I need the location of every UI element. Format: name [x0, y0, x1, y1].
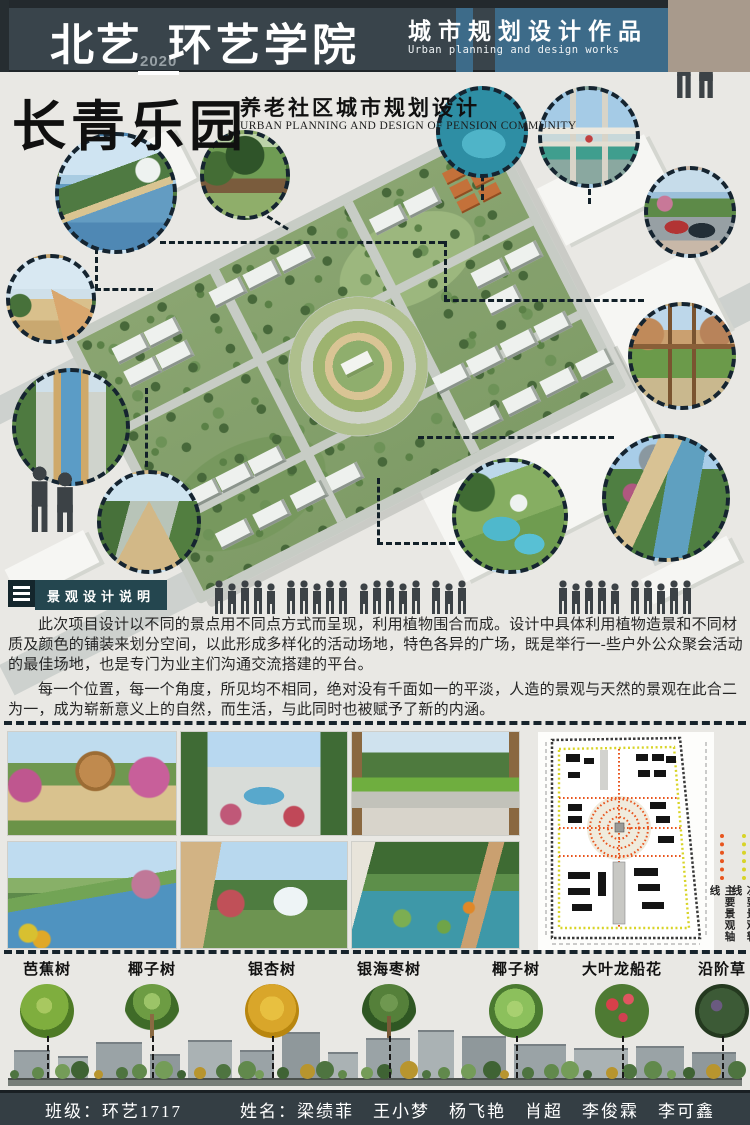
route-dashed-line — [444, 299, 644, 302]
header-left-edge — [0, 0, 9, 72]
photo-planter-garden — [352, 732, 519, 835]
route-dashed-line — [377, 542, 455, 545]
description-paragraph-1: 此次项目设计以不同的景点用不同点方式而呈现，利用植物围合而成。设计中具体利用植物… — [8, 615, 744, 675]
secondary-axis-label: 次要景观轴线 — [729, 885, 750, 950]
photo-pergola-walkway — [8, 732, 176, 835]
plant-image-coconut-palm-2 — [489, 984, 543, 1038]
photo-lotus-river — [8, 842, 176, 948]
footer-bar: 班级：环艺1717 姓名：梁绩菲 王小梦 杨飞艳 肖超 李俊霖 李可鑫 — [0, 1090, 750, 1125]
project-subtitle-en: URBAN PLANNING AND DESIGN OF PENSION COM… — [240, 120, 577, 132]
plant-image-date-palm — [362, 984, 416, 1038]
plant-label: 银杏树 — [212, 958, 332, 979]
menu-icon — [8, 580, 35, 607]
plant-image-ixora — [595, 984, 649, 1038]
site-plan-svg — [538, 732, 714, 950]
plan-legend: 主要景观轴线 次要景观轴线 — [714, 834, 748, 950]
primary-axis-sample-line — [720, 834, 724, 880]
plant-connector-line — [389, 1036, 391, 1078]
photo-koi-pond — [352, 842, 519, 948]
names-label: 姓名： — [240, 1102, 297, 1121]
legend-primary-axis: 主要景观轴线 — [714, 834, 729, 950]
plant-connector-line — [272, 1036, 274, 1078]
dashed-divider-top — [4, 721, 746, 725]
description-paragraph-2: 每一个位置，每一个角度，所见均不相同，绝对没有千面如一的平淡，人造的景观与天然的… — [8, 680, 744, 720]
plant-image-banana — [20, 984, 74, 1038]
vignette-playground — [6, 254, 96, 344]
photo-fountain-street — [181, 842, 347, 948]
plant-image-ginkgo — [245, 984, 299, 1038]
photo-axis-fountain — [181, 732, 347, 835]
dashed-divider-bottom — [4, 950, 746, 954]
school-name: 北艺 — [50, 21, 142, 70]
plant-connector-line — [722, 1036, 724, 1078]
vignette-pool-garden — [452, 458, 568, 574]
plant-connector-line — [47, 1036, 49, 1078]
route-dashed-line — [444, 241, 447, 301]
names-field: 姓名：梁绩菲 王小梦 杨飞艳 肖超 李俊霖 李可鑫 — [240, 1097, 715, 1122]
plant-label: 芭蕉树 — [0, 958, 107, 979]
plaza-building — [341, 351, 375, 379]
description-heading: 景观设计说明 — [35, 580, 167, 610]
vignette-steps-plaza — [97, 470, 201, 574]
vignette-river-walk — [602, 434, 730, 562]
college-name: 环艺学院 — [168, 9, 360, 73]
class-value: 环艺1717 — [102, 1102, 182, 1121]
work-category-zh: 城市规划设计作品 — [408, 12, 668, 46]
description-header: 景观设计说明 — [8, 580, 167, 610]
plant-connector-line — [516, 1036, 518, 1078]
people-silhouette-row — [556, 580, 701, 614]
plant-connector-line — [152, 1036, 154, 1078]
secondary-axis-sample-line — [742, 834, 746, 880]
class-field: 班级：环艺1717 — [45, 1097, 182, 1122]
elevation-render-strip — [8, 1034, 742, 1086]
site-plan-drawing — [538, 732, 714, 950]
route-dashed-line — [95, 288, 153, 291]
vignette-parking-lot — [644, 166, 736, 258]
header-bar: 北艺2020 环艺学院 城市规划设计作品 Urban planning and … — [0, 0, 750, 72]
plant-image-ophiopogon — [695, 984, 749, 1038]
vignette-pergola — [628, 302, 736, 410]
legend-secondary-axis: 次要景观轴线 — [736, 834, 750, 950]
header-tan-block — [668, 0, 750, 72]
vignette-entrance-gate — [538, 86, 640, 188]
project-subtitle-zh: 养老社区城市规划设计 — [240, 92, 480, 122]
work-category-en: Urban planning and design works — [408, 44, 668, 56]
route-dashed-line — [418, 436, 614, 439]
header-top-strip — [0, 0, 668, 8]
plant-connector-line — [622, 1036, 624, 1078]
project-title: 长青乐园 — [12, 82, 248, 161]
route-dashed-line — [377, 478, 380, 544]
plant-image-coconut-palm — [125, 984, 179, 1038]
school-logo: 北艺2020 — [50, 9, 179, 75]
people-silhouette-row — [212, 580, 469, 614]
plant-label: 银海枣树 — [329, 958, 449, 979]
people-silhouette-pair-left — [26, 466, 77, 532]
class-label: 班级： — [45, 1102, 102, 1121]
plant-label: 椰子树 — [92, 958, 212, 979]
names-list: 梁绩菲 王小梦 杨飞艳 肖超 李俊霖 李可鑫 — [297, 1102, 715, 1121]
elevation-ground-line — [8, 1078, 742, 1086]
plant-label: 椰子树 — [456, 958, 576, 979]
route-dashed-line — [160, 241, 444, 244]
plant-label: 沿阶草 — [662, 958, 750, 979]
description-text: 此次项目设计以不同的景点用不同点方式而呈现，利用植物围合而成。设计中具体利用植物… — [8, 615, 744, 720]
